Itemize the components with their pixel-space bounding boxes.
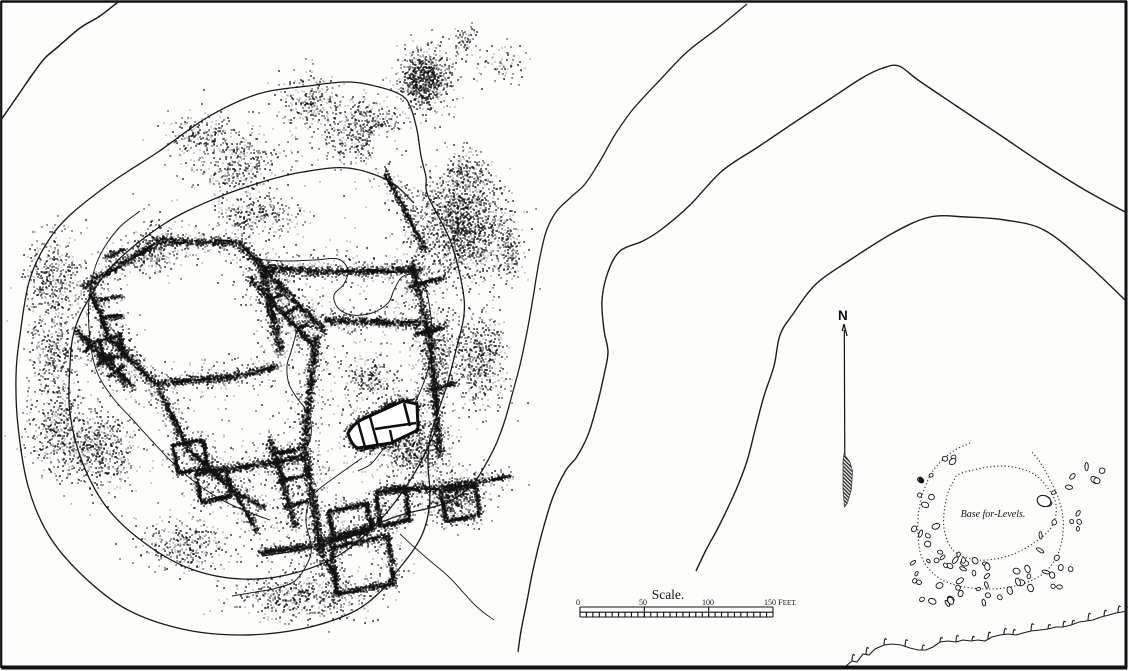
svg-text:FEET.: FEET.	[778, 597, 797, 607]
svg-text:100: 100	[702, 598, 714, 607]
svg-text:50: 50	[639, 598, 647, 607]
svg-text:N: N	[838, 308, 848, 323]
svg-text:Scale.: Scale.	[652, 587, 685, 602]
svg-text:150: 150	[764, 598, 776, 607]
svg-text:Base for-Levels.: Base for-Levels.	[961, 509, 1026, 520]
svg-text:0: 0	[576, 598, 580, 607]
